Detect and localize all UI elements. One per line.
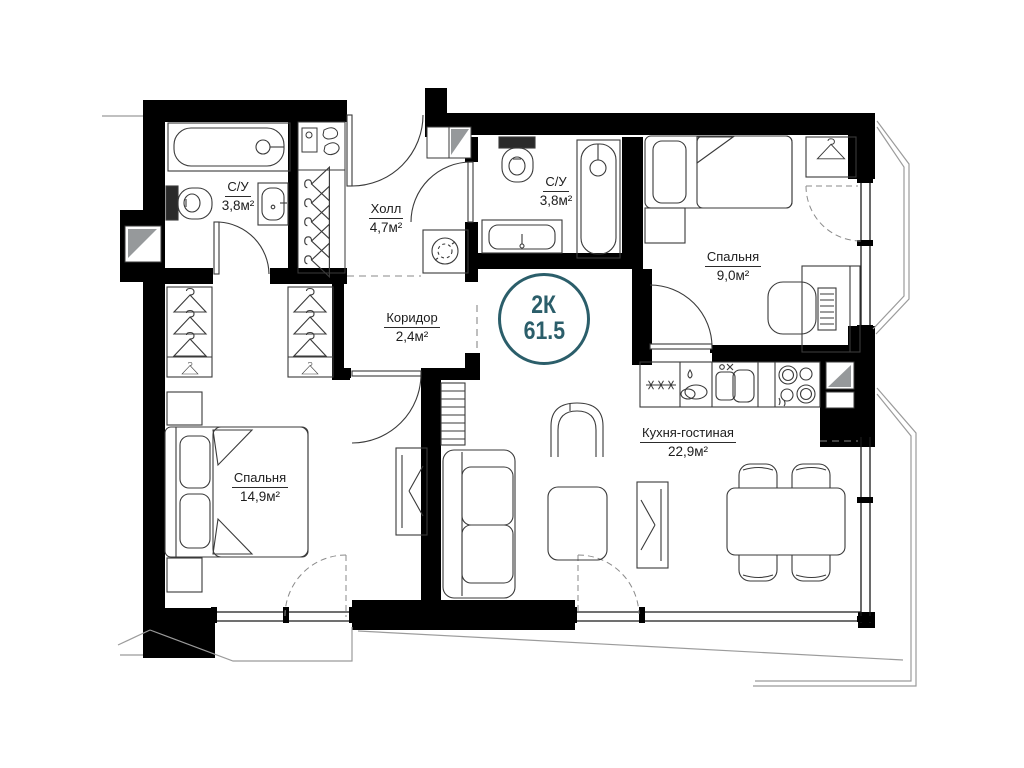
bed bbox=[645, 136, 792, 208]
armchair bbox=[551, 403, 603, 457]
nightstand bbox=[167, 392, 202, 425]
closet bbox=[167, 287, 212, 377]
dishwasher-icon bbox=[681, 370, 707, 399]
nightstand bbox=[645, 208, 685, 243]
closet bbox=[288, 287, 333, 377]
balcony-door-bedroom bbox=[285, 555, 346, 617]
room-bedroom-small bbox=[645, 136, 860, 352]
room-kitchen-living bbox=[441, 362, 845, 598]
room-label-corridor: Коридор 2,4м² bbox=[367, 310, 457, 346]
room-label-bathroom-1: С/У 3,8м² bbox=[193, 179, 283, 215]
stove-icon bbox=[779, 366, 815, 406]
dining-table bbox=[727, 488, 845, 555]
room-label-bathroom-2: С/У 3,8м² bbox=[511, 174, 601, 210]
balcony-door-kitchen bbox=[578, 555, 639, 614]
room-area: 14,9м² bbox=[215, 489, 305, 506]
room-area: 22,9м² bbox=[628, 444, 748, 461]
shelf-unit bbox=[441, 383, 465, 445]
room-area: 3,8м² bbox=[193, 198, 283, 215]
coffee-table bbox=[548, 487, 607, 560]
sofa bbox=[443, 450, 515, 598]
kitchen-counter bbox=[640, 362, 820, 407]
room-name: С/У bbox=[225, 179, 250, 197]
balcony-door-bedroom-small bbox=[806, 186, 861, 241]
sink-icon bbox=[482, 220, 562, 253]
room-area: 4,7м² bbox=[341, 220, 431, 237]
room-name: С/У bbox=[543, 174, 568, 192]
bedroom-small-door bbox=[650, 285, 712, 349]
shoe-shelf-icon bbox=[302, 128, 339, 155]
room-area: 9,0м² bbox=[688, 268, 778, 285]
room-name: Спальня bbox=[232, 470, 288, 488]
room-label-kitchen-living: Кухня-гостиная 22,9м² bbox=[628, 425, 748, 461]
bathtub-icon bbox=[168, 123, 290, 171]
hall-closet bbox=[298, 122, 345, 277]
room-name: Кухня-гостиная bbox=[640, 425, 736, 443]
floor-plan: С/У 3,8м² Холл 4,7м² С/У 3,8м² Спальня 9… bbox=[0, 0, 1024, 768]
badge-rooms-type: 2К bbox=[532, 293, 557, 318]
room-area: 2,4м² bbox=[367, 329, 457, 346]
room-area: 3,8м² bbox=[511, 193, 601, 210]
sink-icon bbox=[716, 364, 754, 402]
badge-total-area: 61.5 bbox=[523, 318, 564, 345]
room-name: Холл bbox=[369, 201, 404, 219]
plan-type-badge: 2К 61.5 bbox=[498, 273, 590, 365]
tv-stand bbox=[637, 482, 668, 568]
room-name: Коридор bbox=[384, 310, 439, 328]
window-caps bbox=[211, 177, 873, 623]
floor-plan-drawing bbox=[0, 0, 1024, 768]
bathroom-1-door bbox=[214, 222, 269, 274]
room-label-hall: Холл 4,7м² bbox=[341, 201, 431, 237]
walls bbox=[120, 88, 875, 658]
room-label-bedroom-master: Спальня 14,9м² bbox=[215, 470, 305, 506]
windows bbox=[215, 179, 870, 623]
bedroom-master-door bbox=[352, 371, 421, 443]
entrance-door bbox=[347, 115, 423, 186]
room-name: Спальня bbox=[705, 249, 761, 267]
nightstand bbox=[167, 558, 202, 592]
room-label-bedroom-small: Спальня 9,0м² bbox=[688, 249, 778, 285]
fridge-icon bbox=[646, 381, 676, 390]
